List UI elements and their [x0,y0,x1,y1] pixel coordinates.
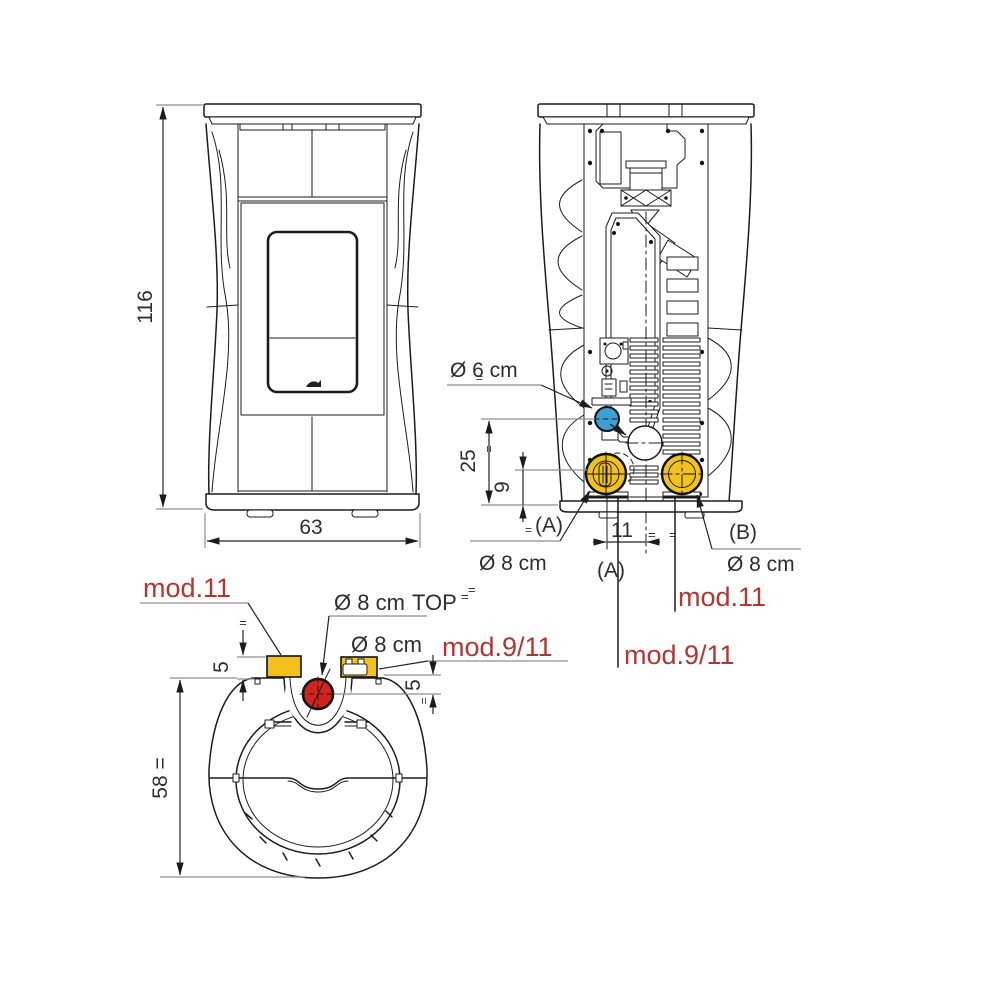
door-glass [268,232,357,392]
dim-9-label: 9 [491,481,514,493]
power-switch [602,379,616,396]
svg-text:=: = [525,523,532,537]
technical-drawing-page: 116 63 [0,0,1000,1000]
port-a-ref: (A) [535,514,563,537]
top-outlet-tag: TOP [412,590,457,615]
port-a-diameter: Ø 8 cm [479,552,547,575]
top-outlet-diameter: Ø 8 cm [334,590,405,615]
front-view: 116 63 [134,104,421,548]
model-9-11-right-label: mod.9/11 [442,632,553,662]
svg-text:=: = [417,697,431,704]
width-dimension: 63 [205,513,420,548]
air-intake-label: Ø 6 cm [450,359,518,382]
rear-outlet-diameter: Ø 8 cm [351,632,422,657]
foot-left [247,510,273,517]
dim-11-label: 11 [611,519,633,542]
model-9-11-label: mod.9/11 [624,640,735,670]
svg-text:=: = [648,527,656,542]
vent-slots [667,257,698,336]
port-b-diameter: Ø 8 cm [727,553,795,576]
width-dimension-label: 63 [299,516,322,539]
brand-logo [306,380,321,387]
dim-5-right-label: 5 [402,679,425,691]
base-plate [206,494,419,510]
top-plate [204,104,421,117]
svg-text:=: = [461,589,469,604]
height-dimension: 116 [134,105,203,509]
rear-base-plate [560,501,742,512]
stove-dimension-diagram: 116 63 [0,0,1000,1000]
port-a-ref-2: (A) [597,559,625,582]
rear-top-plate [538,104,754,117]
rear-view: Ø 6 cm = 25 = 9 = = (A) Ø 8 cm (B) Ø 8 [447,104,801,670]
dim-58-label: 58 = [149,757,172,798]
rear-access-panel [606,213,660,442]
model-11-label: mod.11 [678,582,766,612]
dim-5-left-label: 5 [210,661,233,673]
tolerance-mark: = [476,371,483,385]
dim-25-label: 25 [457,449,480,472]
top-view: mod.11 Ø 8 cm TOP = Ø 8 cm mod.9/11 5 = … [140,573,568,878]
outlet-left-mod11 [267,656,301,677]
height-dimension-label: 116 [134,290,157,323]
foot-right [352,510,378,517]
svg-text:=: = [239,615,247,630]
outlet-right-mod911 [341,657,377,677]
svg-text:=: = [482,445,496,452]
flue-pipe [630,168,662,190]
port-b-ref: (B) [729,521,757,544]
svg-text:=: = [468,582,476,597]
model-11-left-label: mod.11 [143,573,231,603]
flue-flange [626,161,666,168]
